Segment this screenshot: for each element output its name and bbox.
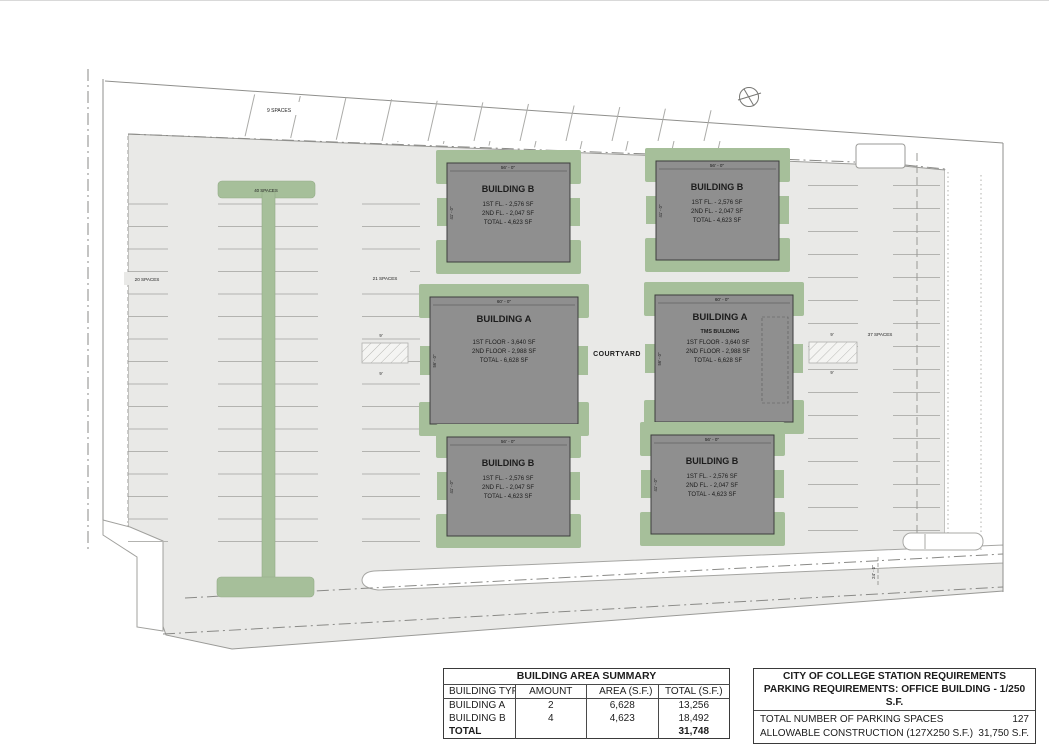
building-area-line: 2ND FLOOR - 2,988 SF <box>472 349 536 355</box>
cell-amount: 4 <box>515 712 587 725</box>
landscape-island-bottom <box>217 577 314 597</box>
summary-table-title: BUILDING AREA SUMMARY <box>444 669 730 685</box>
crosswalk-hatch-west <box>362 343 408 363</box>
building-b-northeast: 56' - 0" 41' - 0" BUILDING B 1ST FL. - 2… <box>645 148 790 272</box>
parking-count-west-edge: 20 SPACES <box>135 277 160 282</box>
building-area-line: TOTAL - 4,623 SF <box>484 494 533 500</box>
site-plan-page: { "colors": { "lot_gray": "#e9e9e7", "la… <box>0 0 1049 750</box>
stall-width-dim: 9' <box>379 371 382 376</box>
landscape-island-stem <box>262 192 275 582</box>
summary-col-area: AREA (S.F.) <box>587 685 659 699</box>
building-area-line: TOTAL - 6,628 SF <box>480 358 529 364</box>
north-arrow-icon <box>738 88 761 107</box>
cell-total: 13,256 <box>658 699 730 713</box>
city-requirements-table: CITY OF COLLEGE STATION REQUIREMENTS PAR… <box>753 668 1036 744</box>
requirement-value: 31,750 S.F. <box>978 727 1029 741</box>
building-b-southeast: 56' - 0" 41' - 0" BUILDING B 1ST FL. - 2… <box>640 422 785 546</box>
stall-width-dim: 9' <box>379 333 382 338</box>
stall-width-dim: 9' <box>830 332 833 337</box>
building-depth-dim: 41' - 0" <box>449 480 454 494</box>
building-name: BUILDING B <box>691 182 744 192</box>
east-margin <box>945 170 1003 551</box>
summary-col-amount: AMOUNT <box>515 685 587 699</box>
building-area-line: 1ST FLOOR - 3,640 SF <box>687 340 750 346</box>
table-row: BUILDING B 4 4,623 18,492 <box>444 712 730 725</box>
building-b-southwest: 56' - 0" 41' - 0" BUILDING B 1ST FL. - 2… <box>436 424 581 548</box>
building-a-west: 60' - 0" 56' - 0" BUILDING A 1ST FLOOR -… <box>419 284 589 436</box>
building-area-line: 2ND FL. - 2,047 SF <box>482 485 534 491</box>
cell-building: BUILDING A <box>444 699 516 713</box>
building-width-dim: 60' - 0" <box>497 299 512 304</box>
building-name: BUILDING A <box>476 314 531 325</box>
parking-count-island: 40 SPACES <box>254 188 278 193</box>
building-name: BUILDING B <box>482 184 535 194</box>
building-area-line: 1ST FL. - 2,576 SF <box>483 202 534 208</box>
requirements-title: CITY OF COLLEGE STATION REQUIREMENTS <box>754 670 1035 683</box>
requirements-subtitle: PARKING REQUIREMENTS: OFFICE BUILDING - … <box>754 683 1035 709</box>
building-area-line: TOTAL - 4,623 SF <box>693 218 742 224</box>
building-area-line: 2ND FL. - 2,047 SF <box>482 211 534 217</box>
building-area-line: 2ND FLOOR - 2,988 SF <box>686 349 750 355</box>
requirement-value: 127 <box>1012 713 1029 727</box>
building-depth-dim: 41' - 0" <box>449 206 454 220</box>
building-name: BUILDING B <box>686 456 739 466</box>
building-area-line: 2ND FL. - 2,047 SF <box>686 483 738 489</box>
summary-col-total: TOTAL (S.F.) <box>658 685 730 699</box>
building-area-line: 1ST FLOOR - 3,640 SF <box>473 340 536 346</box>
requirement-label: TOTAL NUMBER OF PARKING SPACES <box>760 713 943 727</box>
building-area-line: TOTAL - 6,628 SF <box>694 358 743 364</box>
cell-total: 18,492 <box>658 712 730 725</box>
building-width-dim: 60' - 0" <box>715 297 730 302</box>
building-width-dim: 56' - 0" <box>501 165 516 170</box>
building-a-east-tms: 60' - 0" 56' - 0" BUILDING A TMS BUILDIN… <box>644 282 804 434</box>
curb-return <box>903 533 983 550</box>
summary-col-building-type: BUILDING TYPE <box>444 685 516 699</box>
total-label: TOTAL <box>444 725 516 739</box>
total-value: 31,748 <box>658 725 730 739</box>
aisle-dim-label: 24' - 0" <box>871 565 876 579</box>
building-area-summary-table: BUILDING AREA SUMMARY BUILDING TYPE AMOU… <box>443 668 730 739</box>
building-depth-dim: 56' - 0" <box>432 354 437 368</box>
parking-stalls-west-edge <box>128 197 168 549</box>
cell-building: BUILDING B <box>444 712 516 725</box>
table-row: TOTAL NUMBER OF PARKING SPACES 127 <box>754 713 1035 727</box>
building-depth-dim: 41' - 0" <box>658 204 663 218</box>
building-depth-dim: 41' - 0" <box>653 478 658 492</box>
building-width-dim: 56' - 0" <box>501 439 516 444</box>
table-total-row: TOTAL 31,748 <box>444 725 730 739</box>
parking-count-top: 9 SPACES <box>267 108 292 114</box>
building-area-line: 1ST FL. - 2,576 SF <box>687 474 738 480</box>
building-subtitle: TMS BUILDING <box>701 329 740 335</box>
parking-count-west-inner: 21 SPACES <box>373 276 398 281</box>
cell-area: 4,623 <box>587 712 659 725</box>
west-margin <box>103 80 128 525</box>
building-width-dim: 56' - 0" <box>710 163 725 168</box>
table-row: BUILDING A 2 6,628 13,256 <box>444 699 730 713</box>
building-width-dim: 56' - 0" <box>705 437 720 442</box>
courtyard-label: COURTYARD <box>593 351 641 358</box>
building-depth-dim: 56' - 0" <box>657 352 662 366</box>
parking-stalls-west-inner <box>362 201 420 551</box>
site-plan-drawing: 9 SPACES 40 SPACES 20 SPACES 21 SPACES 9… <box>0 1 1049 661</box>
building-b-northwest: 56' - 0" 41' - 0" BUILDING B 1ST FL. - 2… <box>436 150 581 274</box>
building-area-line: 1ST FL. - 2,576 SF <box>483 476 534 482</box>
building-name: BUILDING A <box>692 312 747 323</box>
cell-area: 6,628 <box>587 699 659 713</box>
building-area-line: TOTAL - 4,623 SF <box>484 220 533 226</box>
stall-width-dim: 9' <box>830 370 833 375</box>
table-row: ALLOWABLE CONSTRUCTION (127X250 S.F.) 31… <box>754 727 1035 741</box>
cell-amount: 2 <box>515 699 587 713</box>
requirement-label: ALLOWABLE CONSTRUCTION (127X250 S.F.) <box>760 727 973 741</box>
building-area-line: TOTAL - 4,623 SF <box>688 492 737 498</box>
crosswalk-hatch-east <box>809 342 857 363</box>
parking-count-east: 37 SPACES <box>868 332 893 337</box>
driveway-apron <box>856 144 905 168</box>
building-area-line: 1ST FL. - 2,576 SF <box>692 200 743 206</box>
building-name: BUILDING B <box>482 458 535 468</box>
building-area-line: 2ND FL. - 2,047 SF <box>691 209 743 215</box>
